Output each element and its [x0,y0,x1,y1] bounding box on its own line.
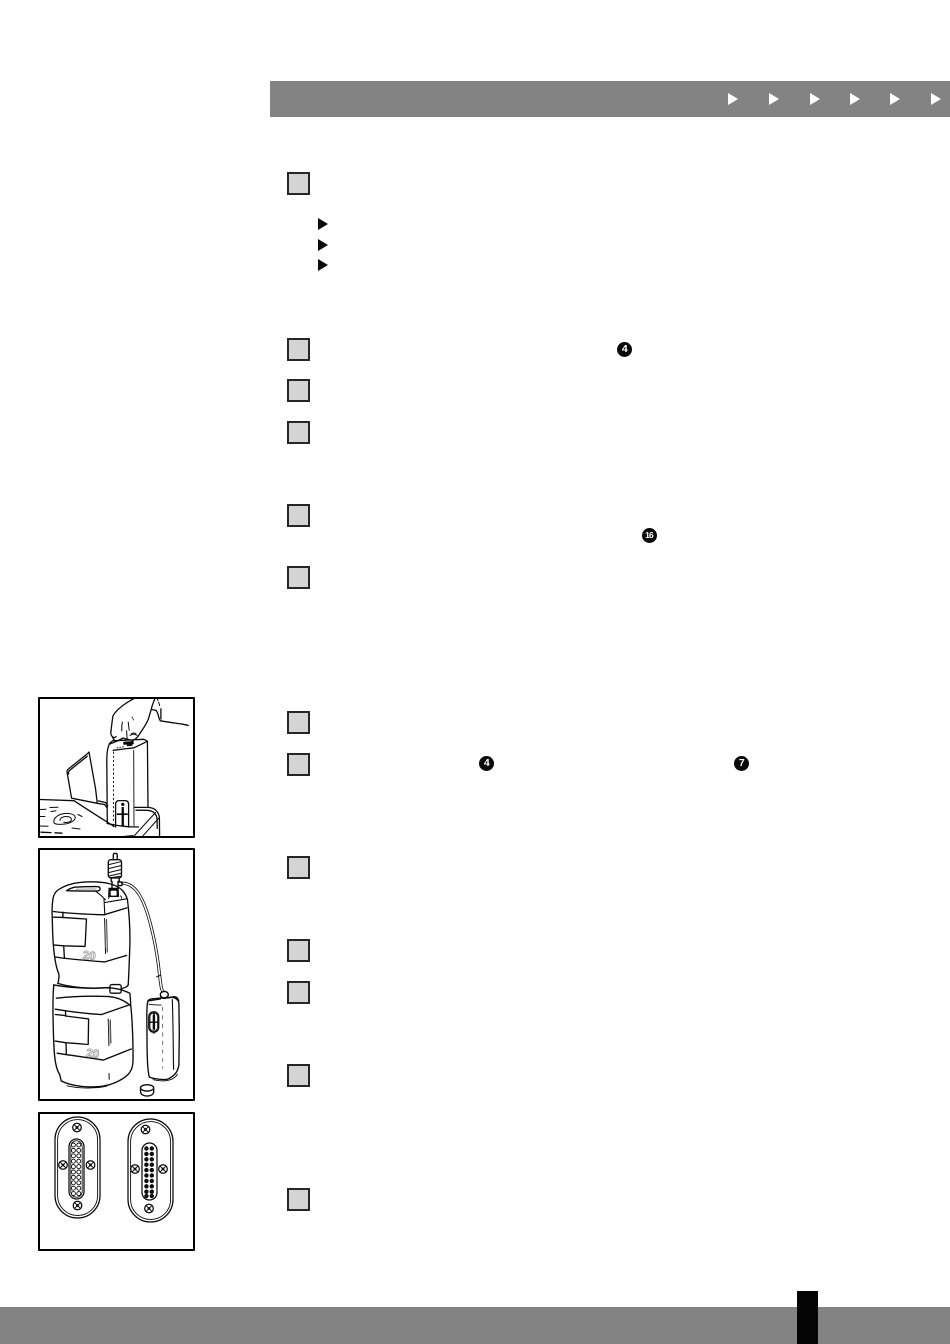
svg-text:20: 20 [82,950,96,963]
svg-text:20: 20 [86,1048,100,1061]
